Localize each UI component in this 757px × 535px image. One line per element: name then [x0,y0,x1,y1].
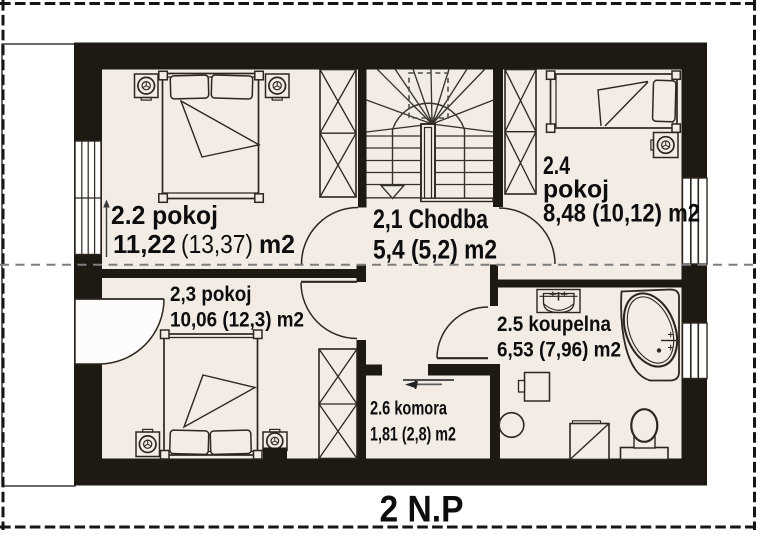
svg-text:2,3 pokoj: 2,3 pokoj [170,282,252,306]
svg-text:2.2 pokoj: 2.2 pokoj [111,200,218,230]
svg-text:1,81 (2,8) m2: 1,81 (2,8) m2 [370,424,456,446]
svg-text:2.6 komora: 2.6 komora [370,398,447,420]
svg-text:m2: m2 [259,229,295,259]
svg-text:10,06 (12,3) m2: 10,06 (12,3) m2 [170,308,304,332]
svg-text:2,1 Chodba: 2,1 Chodba [373,204,489,234]
svg-text:2.5 koupelna: 2.5 koupelna [497,312,612,336]
svg-text:11,22: 11,22 [113,229,176,259]
svg-text:6,53 (7,96) m2: 6,53 (7,96) m2 [497,338,621,362]
svg-text:5,4 (5,2) m2: 5,4 (5,2) m2 [373,235,497,265]
svg-text:(13,37): (13,37) [181,229,253,259]
svg-text:2 N.P: 2 N.P [380,488,464,530]
svg-text:8,48 (10,12) m2: 8,48 (10,12) m2 [543,200,700,228]
